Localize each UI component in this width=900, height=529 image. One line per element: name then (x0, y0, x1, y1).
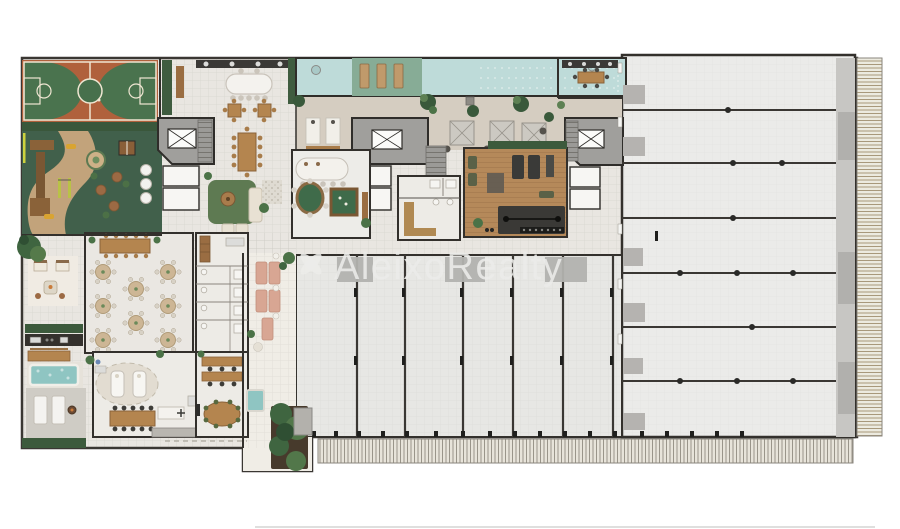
play-tower-base (30, 198, 50, 216)
office-counter-items (608, 62, 612, 66)
gourmet-appliances (278, 62, 283, 67)
desk-chairs (220, 382, 225, 387)
lobby-table-chairs (245, 127, 250, 132)
bay-door-marks-lower (510, 356, 513, 365)
meeting-chairs (214, 400, 219, 405)
spin-bike-2 (468, 173, 477, 186)
right-corridor-seg-3 (838, 362, 855, 414)
toy-car-1 (66, 144, 76, 149)
bottom-wall-ticks (312, 431, 316, 437)
hall-marks (725, 107, 731, 113)
hall-pilaster-4 (623, 303, 645, 322)
courtyard-side-tables (273, 313, 279, 319)
courtyard-plant (247, 330, 255, 338)
terrace-tables (540, 128, 547, 135)
bay-door-marks-upper (402, 288, 405, 297)
spa-vanity (95, 366, 106, 373)
sauna-bench-h (404, 228, 436, 236)
dumbbells (529, 229, 531, 231)
bay-door-marks-upper (560, 288, 563, 297)
wc-1 (430, 180, 440, 188)
communal-chairs (113, 427, 118, 432)
jacuzzi-bubbles (37, 370, 40, 373)
swing-pole-1 (58, 178, 61, 198)
office-counter-items (596, 62, 600, 66)
kitchen-counter (152, 428, 196, 437)
bottom-wall-ticks (488, 431, 492, 437)
gourmet-sideboard (176, 66, 184, 98)
bay-door-marks-upper (460, 288, 463, 297)
patio-stumps (35, 293, 41, 299)
palm-deck-4 (544, 112, 554, 122)
gym-bench (539, 191, 554, 198)
bottom-wall-ticks (461, 431, 465, 437)
toilet-2 (234, 288, 243, 297)
bar-items (304, 162, 308, 166)
pool-spa-jet-1 (312, 66, 321, 75)
lobby-table-chairs (245, 173, 250, 178)
poker-chairs (307, 178, 313, 184)
coworking-plant (198, 351, 205, 358)
kettlebells (490, 228, 494, 232)
hall-pilaster-1 (623, 85, 645, 104)
relax-round-chairs (141, 193, 152, 204)
head-table-chairs (104, 254, 108, 258)
lounge-plant-1 (259, 203, 269, 213)
billiard-balls (339, 197, 342, 200)
massage-pillows (115, 374, 119, 378)
plant-party-1 (89, 237, 96, 244)
plant-bays-left (283, 252, 295, 264)
poker-chairs (291, 203, 297, 209)
communal-chairs (122, 406, 127, 411)
courtyard-pebble (254, 343, 263, 352)
hall-door-1 (618, 63, 622, 73)
gym-plant (473, 218, 483, 228)
bay-door-marks-upper (610, 288, 613, 297)
office-chairs (605, 75, 609, 79)
plunge-pool (247, 390, 264, 411)
restroom-sinks (201, 269, 207, 275)
plant-party-2 (154, 237, 161, 244)
dumbbells (535, 229, 537, 231)
lobby-table-chairs (258, 145, 263, 150)
lounge-armchair-1 (236, 224, 248, 233)
cafe-table-2 (258, 104, 271, 117)
fire-bowl-flame (71, 409, 74, 412)
meeting-chairs (204, 406, 209, 411)
bay-door-marks-lower (610, 356, 613, 365)
meeting-chairs (228, 400, 233, 405)
picnic-table (28, 351, 70, 361)
bottom-wall-ticks (613, 431, 617, 437)
play-plants (91, 173, 98, 180)
desk-row-1 (202, 357, 242, 366)
office-counter-items (582, 62, 586, 66)
courtyard-lounger-4 (269, 290, 280, 312)
game-shelf (362, 192, 368, 220)
play-poufs (112, 172, 122, 182)
toilet-1 (234, 270, 243, 279)
bottom-wall-ticks (434, 431, 438, 437)
hall-door-5 (618, 334, 622, 344)
island-stools (254, 68, 260, 74)
fridge (188, 396, 196, 406)
meeting-chairs (236, 418, 241, 423)
bay-door-marks-lower (402, 356, 405, 365)
billiard-balls (345, 203, 348, 206)
wc-2 (446, 180, 456, 188)
cafe-chairs-1 (232, 118, 237, 123)
head-table-chairs (114, 254, 118, 258)
lobby-table-chairs (258, 136, 263, 141)
pergola-structure (294, 408, 312, 435)
hall-pilaster-5 (623, 358, 643, 374)
bottom-wall-ticks (513, 431, 517, 437)
island-stools (238, 68, 244, 74)
bottom-wall-ticks (588, 431, 592, 437)
shaft-a-1 (163, 166, 199, 186)
stairs-mid (426, 146, 446, 176)
hall-pilaster-3 (623, 248, 643, 266)
spa-lounger-1 (34, 396, 47, 424)
lobby-table-chairs (258, 163, 263, 168)
shelf-lounger-2 (377, 64, 386, 88)
bottom-wall-ticks (334, 431, 338, 437)
plant-core-b (429, 106, 437, 114)
play-poufs (96, 185, 106, 195)
gourmet-wall-counter (196, 60, 288, 68)
gourmet-appliances (256, 62, 261, 67)
hall-marks (790, 378, 796, 384)
toilet-3 (234, 306, 243, 315)
cafe-chairs-1 (232, 99, 237, 104)
office-chairs (583, 68, 587, 72)
tree-left-large-c (19, 235, 29, 245)
lobby-table-chairs (232, 163, 237, 168)
meeting-chairs (214, 424, 219, 429)
restroom-sinks (201, 305, 207, 311)
courtyard-lounger-2 (269, 262, 280, 284)
smith-machine (487, 173, 504, 193)
hall-marks (734, 270, 740, 276)
communal-chairs (113, 406, 118, 411)
patio-stumps (59, 293, 65, 299)
coffee-decor (226, 197, 230, 201)
head-table (100, 239, 150, 253)
courtyard-side-tables (273, 253, 279, 259)
play-tower-deck (30, 140, 54, 150)
plant-spa-2 (156, 350, 164, 358)
office-chairs (583, 84, 587, 88)
bottom-wall-ticks (357, 431, 361, 437)
shower-heads (311, 120, 315, 124)
swing-pole-2 (68, 178, 71, 198)
meeting-table (204, 402, 240, 426)
hedge-bbq (25, 324, 83, 333)
billiard-table (331, 189, 357, 215)
tree-left-large-b (30, 246, 46, 262)
lobby-table-chairs (232, 154, 237, 159)
communal-chairs (140, 427, 145, 432)
shelf-lounger-3 (394, 64, 403, 88)
patio-chair-2-back (56, 260, 69, 263)
meeting-chairs (204, 418, 209, 423)
lobby-long-table (238, 133, 256, 171)
hall-marks (749, 324, 755, 330)
desk-row-2 (202, 372, 242, 381)
patio-chair-2 (56, 262, 69, 271)
treadmill-2 (528, 155, 540, 179)
bottom-wall-ticks (381, 431, 385, 437)
hedge-below-court (22, 122, 162, 131)
cafe-chairs-1 (242, 108, 247, 113)
dumbbells (559, 229, 561, 231)
game-bar-counter (296, 158, 348, 180)
poker-chairs (307, 212, 313, 218)
bottom-wall-ticks (690, 431, 694, 437)
poker-chairs (323, 203, 329, 209)
lounge-armchair-2 (222, 224, 234, 233)
bay-door-marks-lower (460, 356, 463, 365)
head-table-chairs (124, 254, 128, 258)
plant-spa-1 (86, 356, 95, 365)
dumbbells (547, 229, 549, 231)
hall-marks (730, 215, 736, 221)
jacuzzi-bubbles (67, 377, 70, 380)
kettlebells (485, 228, 489, 232)
restroom-sinks (201, 287, 207, 293)
shaft-c-1 (570, 167, 600, 187)
fire-table-flame (49, 285, 53, 289)
hall-marks (677, 270, 683, 276)
cafe-table-1 (228, 104, 241, 117)
communal-chairs (131, 427, 136, 432)
dumbbells (553, 229, 555, 231)
restroom-sinks (201, 323, 207, 329)
play-plants (123, 181, 130, 188)
office-chairs (573, 75, 577, 79)
court-ball (98, 99, 101, 102)
spin-bike-1 (468, 156, 477, 169)
office-chairs (595, 84, 599, 88)
shelf-lounger-1 (360, 64, 369, 88)
office-counter-items (568, 62, 572, 66)
plant-game-room (361, 218, 371, 228)
right-corridor-seg-1 (838, 112, 855, 160)
office-chairs (595, 68, 599, 72)
island-stools (238, 95, 244, 101)
shaft-a-2 (163, 188, 199, 210)
hedge-court-side (162, 60, 172, 115)
desk-chairs (232, 367, 237, 372)
communal-chairs (140, 406, 145, 411)
watermark-text: AleixoRealty (334, 246, 563, 288)
hall-pilaster-2 (623, 137, 645, 156)
toy-car-2 (44, 214, 54, 219)
bar-stools (320, 181, 326, 187)
bbq-grill-1 (30, 337, 41, 343)
relax-round-chairs (141, 179, 152, 190)
bottom-wall-ticks (715, 431, 719, 437)
poker-chairs (291, 187, 297, 193)
shower-heads (331, 120, 335, 124)
bay-door-marks-upper (510, 288, 513, 297)
play-poufs (109, 201, 119, 211)
jacuzzi (30, 365, 78, 385)
bottom-wall-ticks (538, 431, 542, 437)
courtyard-lounger-5 (262, 318, 273, 340)
island-stools (246, 95, 252, 101)
sandbox-center (93, 157, 100, 164)
right-corridor-seg-2 (838, 252, 855, 304)
bbq-items (46, 339, 49, 342)
sauna-sinks (447, 199, 453, 205)
bottom-wall-ticks (640, 431, 644, 437)
outdoor-shower-head (466, 97, 474, 105)
gym-hedge (488, 141, 567, 149)
page-bottom-rule (255, 526, 875, 528)
kitchen-island (226, 74, 272, 94)
palm-deck-2b (513, 96, 521, 104)
hall-marks (677, 378, 683, 384)
planter-foliage-4 (286, 451, 306, 471)
spa-lounger-2 (52, 396, 65, 424)
play-yellow-strip (23, 133, 26, 163)
cable-tower (546, 155, 554, 177)
courtyard-lounger-1 (256, 262, 267, 284)
relax-round-chairs (141, 165, 152, 176)
head-table-chairs (134, 254, 138, 258)
courtyard-side-tables (273, 285, 279, 291)
meeting-screen (196, 404, 200, 416)
plant-bays-left-b (279, 262, 287, 270)
cafe-chairs-1 (223, 108, 228, 113)
bottom-wall-ticks (405, 431, 409, 437)
desk-chairs (208, 382, 213, 387)
dumbbells (523, 229, 525, 231)
hedge-spa-bottom (22, 438, 86, 448)
lounge-plant-2 (204, 172, 212, 180)
jacuzzi-bubbles (49, 374, 52, 377)
cafe-chairs-2 (272, 108, 277, 113)
bottom-wall-ticks (563, 431, 567, 437)
courtyard-lounger-3 (256, 290, 267, 312)
massage-pillows (137, 374, 141, 378)
hall-marks (779, 160, 785, 166)
hall-door-4 (618, 279, 622, 289)
communal-chairs (131, 406, 136, 411)
hall-dark-bar (655, 231, 658, 241)
desk-chairs (208, 367, 213, 372)
bar-stools (340, 181, 346, 187)
bay-door-marks-lower (560, 356, 563, 365)
bar-stools (330, 181, 336, 187)
spa-blue-pot (96, 360, 101, 365)
head-table-chairs (144, 254, 148, 258)
play-plants (103, 212, 110, 219)
right-louver-band (857, 58, 882, 436)
communal-chairs (122, 427, 127, 432)
lobby-table-chairs (232, 145, 237, 150)
bottom-wall-ticks (665, 431, 669, 437)
hall-marks (730, 160, 736, 166)
lockers (200, 236, 210, 262)
bottom-louver-band (318, 439, 853, 463)
sauna-sinks (433, 199, 439, 205)
hall-marks (790, 270, 796, 276)
barbell-plates (555, 216, 561, 222)
poker-chairs (323, 187, 329, 193)
gourmet-appliances (204, 62, 209, 67)
stairs-a (198, 120, 212, 162)
planter-foliage-5 (276, 423, 294, 441)
hall-marks (734, 378, 740, 384)
office-table (578, 72, 604, 83)
bay-door-marks-lower (354, 356, 357, 365)
palm-deck-3 (467, 105, 479, 117)
shaft-c-2 (570, 189, 600, 209)
restroom-counter (226, 238, 244, 246)
toilet-4 (234, 324, 243, 333)
lobby-table-chairs (258, 154, 263, 159)
hall-door-3 (618, 224, 622, 234)
jacuzzi-bubbles (61, 369, 64, 372)
bar-items (316, 162, 320, 166)
floor-plan-svg: AleixoRealty (0, 0, 900, 529)
bbq-items (51, 339, 54, 342)
treadmill-1 (512, 155, 524, 179)
floor-plan-image: AleixoRealty (0, 0, 900, 529)
bottom-wall-ticks (740, 431, 744, 437)
bbq-grill-2 (60, 337, 68, 343)
palm-deck-1b (420, 94, 428, 102)
palm-deck-5 (557, 101, 565, 109)
hall-door-2 (618, 117, 622, 127)
communal-chairs (149, 406, 154, 411)
meeting-chairs (236, 406, 241, 411)
cafe-chairs-2 (253, 108, 258, 113)
cafe-chairs-2 (262, 118, 267, 123)
bay-door-marks-upper (354, 288, 357, 297)
palm-deck-6 (293, 95, 305, 107)
hall-pilaster-6 (623, 413, 645, 430)
poker-table (297, 183, 323, 213)
dumbbells (541, 229, 543, 231)
barbell-plates (503, 216, 509, 222)
lobby-table-chairs (232, 136, 237, 141)
desk-chairs (232, 382, 237, 387)
island-stools (254, 95, 260, 101)
communal-table (110, 411, 155, 426)
gravel-dots (262, 180, 282, 204)
meeting-chairs (228, 424, 233, 429)
gourmet-appliances (230, 62, 235, 67)
patio-chair-1 (34, 262, 47, 271)
desk-chairs (220, 367, 225, 372)
cafe-chairs-2 (262, 99, 267, 104)
